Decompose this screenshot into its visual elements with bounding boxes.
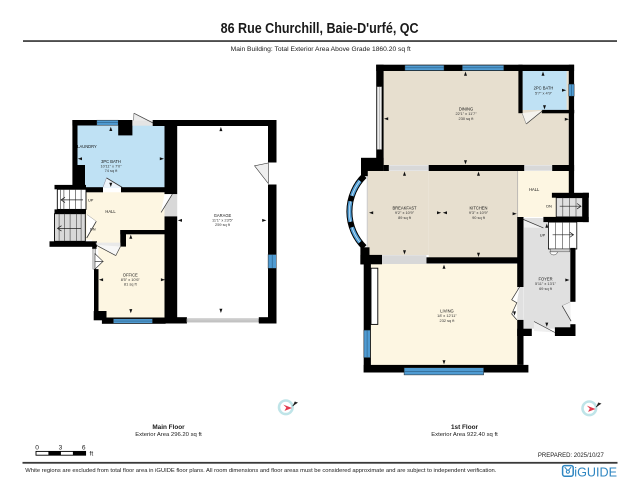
svg-text:HALL: HALL	[529, 187, 540, 192]
svg-text:232 sq ft: 232 sq ft	[440, 318, 456, 323]
svg-text:5'7" x 4'9": 5'7" x 4'9"	[535, 90, 553, 95]
svg-text:Exterior Area 922.40 sq ft: Exterior Area 922.40 sq ft	[431, 432, 498, 438]
svg-text:LAUNDRY: LAUNDRY	[77, 144, 97, 149]
svg-text:iGUIDE: iGUIDE	[574, 465, 617, 479]
svg-text:Main Building: Total Exterior: Main Building: Total Exterior Area Above…	[231, 46, 411, 53]
svg-text:White regions are excluded fro: White regions are excluded from total fl…	[25, 468, 496, 474]
svg-text:Exterior Area 296.20 sq ft: Exterior Area 296.20 sq ft	[135, 432, 202, 438]
svg-text:DN: DN	[90, 226, 96, 231]
svg-text:69 sq ft: 69 sq ft	[539, 286, 553, 291]
svg-text:0: 0	[35, 444, 39, 451]
svg-text:Main Floor: Main Floor	[152, 424, 185, 431]
svg-text:3: 3	[59, 444, 63, 451]
svg-text:UP: UP	[540, 233, 546, 238]
svg-text:74 sq ft: 74 sq ft	[105, 168, 119, 173]
svg-text:DN: DN	[546, 204, 552, 209]
svg-text:230 sq ft: 230 sq ft	[459, 116, 475, 121]
svg-text:6: 6	[82, 444, 86, 451]
svg-text:89 sq ft: 89 sq ft	[398, 215, 412, 220]
svg-text:HALL: HALL	[105, 209, 116, 214]
svg-text:86 Rue Churchill, Baie-D'urfé,: 86 Rue Churchill, Baie-D'urfé, QC	[221, 21, 419, 37]
svg-text:ft: ft	[90, 451, 94, 458]
svg-text:90 sq ft: 90 sq ft	[472, 215, 486, 220]
svg-text:1st Floor: 1st Floor	[451, 424, 478, 431]
svg-text:UP: UP	[88, 198, 94, 203]
svg-text:81 sq ft: 81 sq ft	[124, 282, 138, 287]
svg-text:PREPARED: 2025/10/27: PREPARED: 2025/10/27	[538, 453, 605, 459]
svg-text:259 sq ft: 259 sq ft	[215, 222, 231, 227]
